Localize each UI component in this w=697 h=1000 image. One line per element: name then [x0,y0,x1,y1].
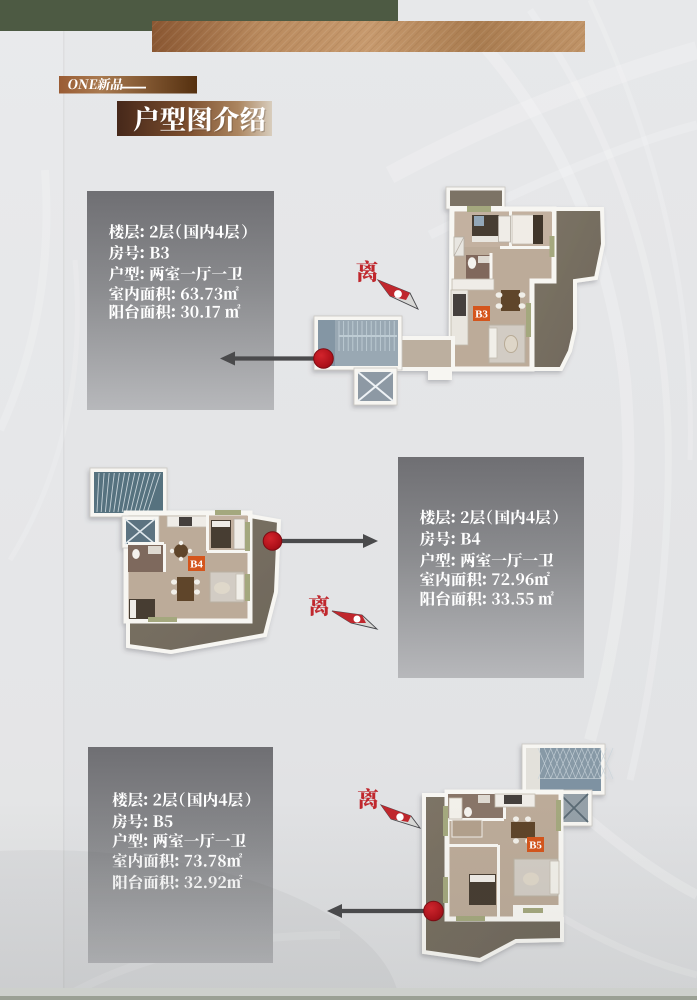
svg-text:B4: B4 [190,559,203,571]
svg-text:B3: B3 [475,309,488,321]
